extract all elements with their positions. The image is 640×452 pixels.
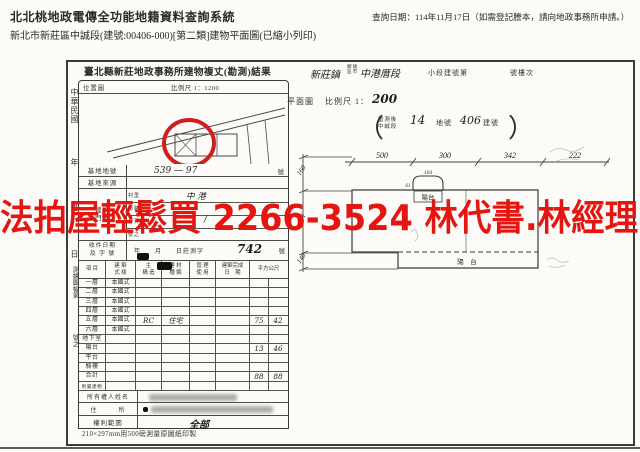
floor-cell bbox=[135, 335, 161, 343]
table-row: 二層本國式 bbox=[79, 288, 288, 297]
floor-cell bbox=[215, 298, 249, 306]
lot-label: 基地地號 bbox=[79, 165, 127, 176]
dim-left: 140 bbox=[295, 252, 308, 266]
survey-form-title: 臺北縣新莊地政事務所建物複丈(勘測)結果 bbox=[84, 64, 271, 78]
rights-label: 權利範圍 bbox=[79, 416, 138, 428]
table-row: 地下室 bbox=[79, 335, 288, 344]
floor-cell bbox=[189, 372, 215, 380]
ink-blot bbox=[137, 253, 149, 260]
floor-label: 騎樓 bbox=[79, 363, 105, 371]
floor-cell bbox=[161, 382, 189, 390]
floor-cell bbox=[189, 354, 215, 362]
balcony-bottom-label: 陽 台 bbox=[457, 257, 477, 266]
floor-cell bbox=[268, 298, 287, 306]
col-header: 建 築 式 樣 bbox=[105, 261, 135, 278]
floor-label: 地下室 bbox=[79, 335, 105, 343]
floor-cell: 本國式 bbox=[105, 288, 135, 296]
location-map-scale: 比例尺 1：1200 bbox=[171, 83, 219, 92]
floor-cell bbox=[161, 279, 189, 287]
floor-cell bbox=[189, 335, 215, 343]
table-row: 附屬建物 bbox=[79, 382, 288, 391]
top-balcony-bump bbox=[413, 176, 443, 190]
floor-label: 平台 bbox=[79, 354, 105, 362]
floor-label: 六層 bbox=[79, 326, 105, 334]
floor-cell bbox=[105, 382, 135, 390]
floor-cell: RC bbox=[135, 316, 161, 324]
floor-cell bbox=[105, 363, 135, 371]
floor-label: 附屬建物 bbox=[79, 382, 105, 390]
floor-cell: 46 bbox=[268, 344, 287, 352]
floor-cell bbox=[135, 307, 161, 315]
floor-cell bbox=[268, 335, 287, 343]
floor-cell bbox=[249, 363, 268, 371]
paper-spec-note: 210×297mm用500磅測量原圖紙印製 bbox=[82, 428, 197, 438]
dim-small-v: 61 bbox=[406, 184, 411, 189]
floor-cell bbox=[135, 298, 161, 306]
floor-cell bbox=[249, 335, 268, 343]
floor-cell: 88 bbox=[268, 372, 287, 380]
floor-cell bbox=[135, 363, 161, 371]
floor-cell bbox=[189, 382, 215, 390]
floor-cell bbox=[189, 344, 215, 352]
query-date: 查詢日期：114年11月17日（如需登記謄本，請向地政事務所申請。） bbox=[372, 11, 629, 23]
floor-label: 一層 bbox=[79, 279, 105, 287]
floor-cell bbox=[249, 382, 268, 390]
receipt-label: 收件日期 及 字 號 bbox=[79, 241, 127, 260]
floor-cell bbox=[215, 354, 249, 362]
floor-cell: 13 bbox=[249, 344, 268, 352]
redacted-owner-address bbox=[151, 406, 273, 413]
floor-cell bbox=[249, 354, 268, 362]
floor-cell bbox=[268, 279, 287, 287]
floor-cell bbox=[105, 335, 135, 343]
dim-top: 342 bbox=[503, 151, 516, 160]
floor-cell bbox=[249, 279, 268, 287]
floor-cell: 42 bbox=[268, 316, 287, 324]
floor-cell bbox=[161, 344, 189, 352]
floor-cell: 住宅 bbox=[161, 316, 189, 324]
floor-cell bbox=[189, 288, 215, 296]
floor-cell bbox=[189, 316, 215, 324]
col-header: 平方公尺 bbox=[249, 261, 287, 278]
floor-cell: 75 bbox=[249, 316, 268, 324]
resurvey-lot-suffix: 地號 bbox=[436, 118, 452, 128]
lot-number-row: 基地地號 539 — 97 號 bbox=[79, 165, 288, 177]
floor-cell bbox=[215, 372, 249, 380]
floor-cell: 本國式 bbox=[105, 326, 135, 334]
floor-cell bbox=[161, 326, 189, 334]
lot-suffix: 號 bbox=[278, 167, 285, 176]
floor-cell bbox=[268, 354, 287, 362]
floor-label: 五層 bbox=[79, 316, 105, 324]
plan-scale-value: 200 bbox=[372, 92, 397, 106]
subsection-printed: 小段建號第 bbox=[428, 68, 468, 78]
floor-cell: 88 bbox=[249, 372, 268, 380]
floor-cell bbox=[189, 307, 215, 315]
table-row: 一層本國式 bbox=[79, 279, 288, 288]
floor-cell bbox=[215, 326, 249, 334]
floor-cell bbox=[105, 372, 135, 380]
floor-label: 合計 bbox=[79, 372, 105, 380]
resurvey-bldg-suffix: 建號 bbox=[483, 118, 499, 128]
table-row: 合計8888 bbox=[79, 372, 288, 381]
col-header: 管 理 使 用 bbox=[189, 261, 215, 278]
floor-cell bbox=[215, 344, 249, 352]
redacted-owner-name bbox=[149, 394, 237, 401]
resurvey-bldg-value: 406 bbox=[460, 114, 481, 127]
owner-label: 所有權人姓名 bbox=[79, 391, 138, 402]
lot-source-label: 基地來源 bbox=[79, 177, 127, 188]
floor-cell bbox=[161, 288, 189, 296]
plan-label: 平面圖 bbox=[287, 96, 314, 107]
table-row: 四層本國式 bbox=[79, 307, 288, 316]
rights-row: 權利範圍 全部 bbox=[79, 416, 288, 428]
floor-table-header: 項 目 建 築 式 樣 主 構 造 建 材 種 類 管 理 使 用 建築完成 日… bbox=[79, 261, 288, 279]
owner-address-label: 住 所 bbox=[79, 403, 138, 415]
floor-cell bbox=[135, 288, 161, 296]
floor-cell bbox=[215, 335, 249, 343]
floor-printed: 號樓次 bbox=[510, 68, 534, 78]
floor-cell: 本國式 bbox=[105, 316, 135, 324]
location-map-svg bbox=[79, 94, 286, 164]
table-row: 三層本國式 bbox=[79, 298, 288, 307]
table-row: 六層本國式 bbox=[79, 326, 288, 335]
floor-cell bbox=[105, 344, 135, 352]
document-subtitle: 新北市新莊區中誠段(建號:00406-000)[第二類]建物平面圖(已縮小列印) bbox=[10, 27, 316, 42]
table-row: 平台 bbox=[79, 354, 288, 363]
dim-left: 160 bbox=[295, 164, 308, 178]
location-map-label: 位置圖 bbox=[83, 83, 105, 92]
floor-cell: 本國式 bbox=[105, 307, 135, 315]
red-circle-highlight bbox=[164, 120, 214, 164]
ink-blot bbox=[157, 262, 172, 270]
floor-cell bbox=[268, 326, 287, 334]
ink-dot bbox=[143, 407, 148, 412]
floor-cell bbox=[105, 354, 135, 362]
floor-cell bbox=[189, 326, 215, 334]
table-row: 陽台1346 bbox=[79, 344, 288, 353]
location-map-header: 位置圖 比例尺 1：1200 bbox=[79, 81, 288, 94]
receipt-suffix: 號 bbox=[279, 246, 286, 255]
owner-row: 所有權人姓名 bbox=[79, 391, 288, 403]
floor-cell bbox=[161, 354, 189, 362]
floor-cell bbox=[135, 279, 161, 287]
township-handwritten: 新莊鎮 bbox=[310, 66, 340, 81]
floor-cell bbox=[215, 288, 249, 296]
floor-cell bbox=[161, 372, 189, 380]
floor-cell bbox=[215, 279, 249, 287]
floor-cell bbox=[268, 288, 287, 296]
floor-cell bbox=[135, 326, 161, 334]
floor-cell bbox=[189, 279, 215, 287]
plan-scale-printed: 比例尺 1： bbox=[325, 96, 369, 107]
floor-label: 二層 bbox=[79, 288, 105, 296]
col-header: 建築完成 日 期 bbox=[215, 261, 249, 278]
survey-form: 位置圖 比例尺 1：1200 基地地號 539 — 97 號 基地來源 建物 門… bbox=[78, 80, 289, 429]
table-row: 騎樓 bbox=[79, 363, 288, 372]
floor-cell bbox=[249, 288, 268, 296]
dim-top: 300 bbox=[438, 151, 451, 160]
floor-cell bbox=[215, 382, 249, 390]
floor-cell bbox=[135, 372, 161, 380]
bottom-divider bbox=[0, 447, 640, 449]
resurvey-lot-value: 14 bbox=[410, 113, 425, 127]
floor-label: 四層 bbox=[79, 307, 105, 315]
floor-cell bbox=[135, 344, 161, 352]
floor-cell bbox=[268, 307, 287, 315]
owner-address-row: 住 所 bbox=[79, 403, 288, 416]
lot-value: 539 — 97 bbox=[154, 166, 197, 176]
section-handwritten: 中港厝段 bbox=[360, 65, 400, 80]
floor-cell bbox=[135, 354, 161, 362]
receipt-number: 742 bbox=[237, 242, 262, 256]
floor-cell bbox=[189, 363, 215, 371]
system-title: 北北桃地政電傳全功能地籍資料查詢系統 bbox=[10, 8, 235, 25]
floor-table-body: 一層本國式二層本國式三層本國式四層本國式五層本國式RC住宅7542六層本國式地下… bbox=[79, 279, 288, 391]
floor-cell bbox=[268, 363, 287, 371]
floor-cell: 本國式 bbox=[105, 279, 135, 287]
col-header: 項 目 bbox=[79, 261, 105, 278]
floor-cell bbox=[161, 335, 189, 343]
lot-source-row: 基地來源 bbox=[79, 177, 288, 189]
floor-label: 陽台 bbox=[79, 344, 105, 352]
floor-label: 三層 bbox=[79, 298, 105, 306]
floor-cell: 本國式 bbox=[105, 298, 135, 306]
table-row: 五層本國式RC住宅7542 bbox=[79, 316, 288, 325]
floor-cell bbox=[215, 307, 249, 315]
receipt-row: 收件日期 及 字 號 年 月 日莊測字 742 號 bbox=[79, 241, 288, 261]
floor-cell bbox=[249, 298, 268, 306]
floor-cell bbox=[215, 316, 249, 324]
floor-cell bbox=[189, 298, 215, 306]
dim-top: 500 bbox=[376, 151, 388, 160]
floor-cell bbox=[161, 307, 189, 315]
floor-cell bbox=[268, 382, 287, 390]
floor-cell bbox=[161, 363, 189, 371]
floor-cell bbox=[135, 382, 161, 390]
advertisement-watermark: 法拍屋輕鬆買 2266-3524 林代書.林經理 bbox=[0, 199, 595, 239]
floor-cell bbox=[249, 307, 268, 315]
township-printed: 鄉鎮 區市 bbox=[347, 64, 358, 74]
dim-small-h: 103 bbox=[424, 170, 433, 176]
floor-cell bbox=[161, 298, 189, 306]
resurvey-stack: 重測後 中誠段 bbox=[378, 117, 397, 130]
floor-cell bbox=[249, 326, 268, 334]
floor-cell bbox=[215, 363, 249, 371]
location-map bbox=[79, 94, 288, 165]
